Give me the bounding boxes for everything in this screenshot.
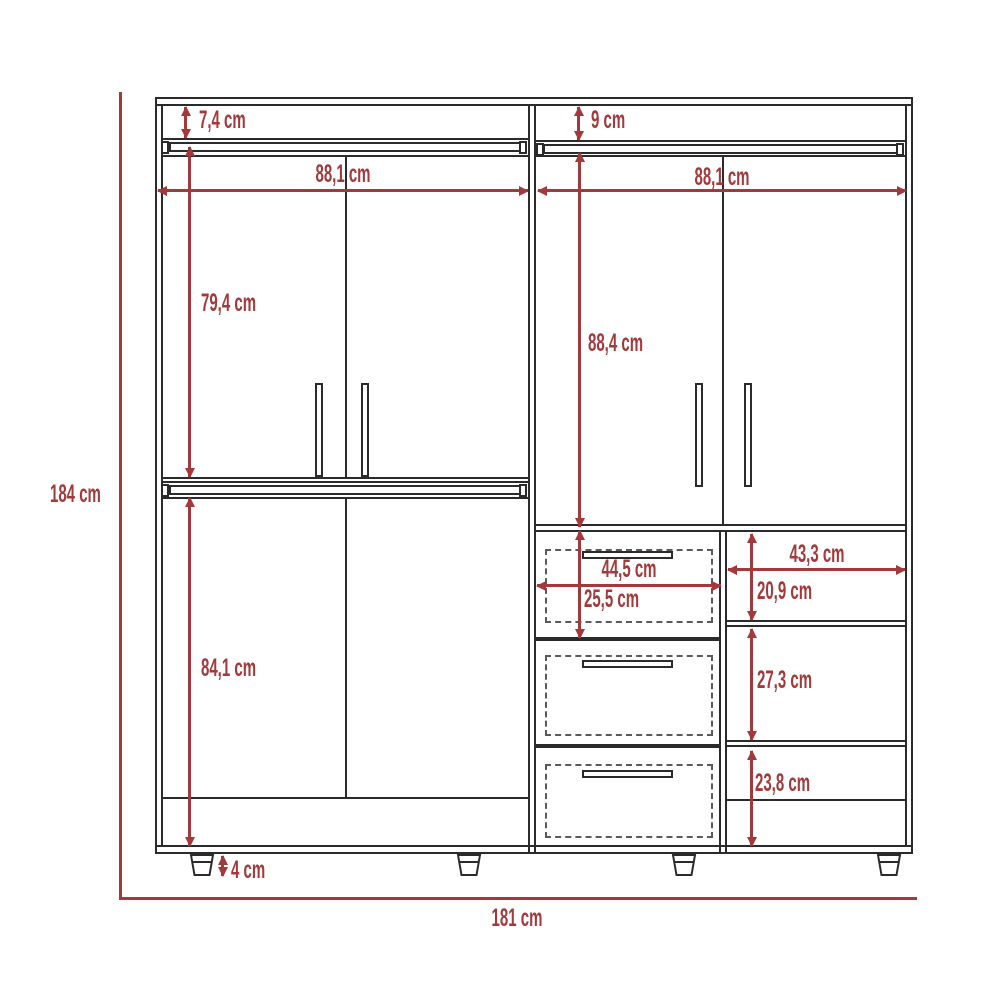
foot-far-left	[189, 854, 215, 876]
dim-label-right-section-width: 88,1 cm	[676, 165, 768, 190]
dim-label-text: 88,1 cm	[315, 162, 370, 187]
foot-center-left	[456, 854, 482, 876]
right-door-handle-left	[695, 383, 703, 487]
foot-far-right	[876, 854, 902, 876]
left-upper-door-handle-left	[315, 383, 323, 477]
drawer-3-handle	[582, 770, 673, 778]
right-door-handle-right	[744, 383, 752, 487]
dim-label-text: 23,8 cm	[755, 771, 810, 796]
left-upper-door-handle-right	[361, 383, 369, 477]
column-divider-right	[725, 530, 727, 852]
left-rod-cap-left	[161, 141, 169, 154]
left-top-shelf-line	[163, 138, 528, 140]
dim-line-total-width	[119, 897, 917, 900]
left-lower-door-divider	[345, 499, 347, 798]
drawer-divider-1	[536, 637, 719, 641]
dim-label-text: 27,3 cm	[757, 668, 812, 693]
right-doors-top-line	[536, 155, 905, 157]
left-middle-shelf-line	[163, 481, 528, 483]
dim-arrow-top-gap-left	[184, 107, 187, 138]
left-upper-doors-bottom-line	[163, 477, 528, 479]
left-hanging-rod-bottom	[169, 485, 522, 495]
dim-label-text: 84,1 cm	[201, 656, 256, 681]
left-hanging-rod-top	[169, 142, 522, 152]
dim-label-shelf-top-height: 20,9 cm	[757, 579, 849, 604]
dim-label-top-gap-left: 7,4 cm	[199, 108, 277, 133]
dim-label-text: 7,4 cm	[199, 108, 246, 133]
dim-label-drawer-width: 44,5 cm	[583, 557, 675, 582]
dim-label-shelf-bottom-height: 23,8 cm	[755, 771, 847, 796]
dim-label-left-upper-door-height: 79,4 cm	[201, 291, 293, 316]
dim-label-left-section-width: 88,1 cm	[297, 162, 389, 187]
dim-label-left-lower-door-height: 84,1 cm	[201, 656, 293, 681]
cabinet-center-divider-right	[534, 104, 536, 852]
dim-label-text: 25,5 cm	[584, 587, 639, 612]
left-lower-doors-bottom-line	[163, 797, 528, 799]
left-rod-cap-right	[519, 141, 527, 154]
dim-label-text: 43,3 cm	[789, 542, 844, 567]
left-rod2-cap-right	[519, 484, 527, 497]
dim-label-shelf-section-width: 43,3 cm	[771, 542, 863, 567]
dim-label-text: 4 cm	[231, 858, 265, 883]
dim-arrow-foot-height	[221, 856, 224, 876]
dim-label-top-gap-right: 9 cm	[591, 108, 648, 133]
dim-label-text: 181 cm	[492, 906, 543, 931]
dim-label-text: 44,5 cm	[601, 557, 656, 582]
shelf-divider-a-bottom	[727, 625, 905, 627]
dim-label-text: 88,4 cm	[588, 331, 643, 356]
dim-arrow-shelf-section-width	[728, 568, 905, 571]
shelf-divider-b-bottom	[727, 745, 905, 747]
dim-label-right-door-height: 88,4 cm	[588, 331, 680, 356]
right-hanging-rod	[543, 144, 898, 154]
wardrobe-dimension-diagram: 7,4 cm 9 cm 88,1 cm 88,1 cm 79,4 cm 88,4…	[0, 0, 1000, 1000]
cabinet-top-edge-outer	[155, 97, 913, 99]
cabinet-bottom-edge-outer	[155, 852, 913, 854]
dim-label-top-drawer-height: 25,5 cm	[584, 587, 676, 612]
dim-arrow-left-upper-door-height	[188, 147, 191, 477]
drawer-divider-2	[536, 744, 719, 748]
cabinet-center-divider-left	[528, 104, 530, 852]
cabinet-right-wall-outer	[911, 97, 913, 854]
cabinet-left-wall-inner	[161, 104, 163, 847]
dim-label-text: 79,4 cm	[201, 291, 256, 316]
dim-arrow-left-lower-door-height	[188, 498, 191, 846]
dim-arrow-right-door-height	[578, 153, 581, 527]
column-divider-left	[719, 530, 721, 852]
dim-label-total-width: 181 cm	[475, 906, 560, 931]
right-top-shelf-line	[536, 140, 905, 142]
dim-label-foot-height: 4 cm	[231, 858, 288, 883]
drawer-2-handle	[582, 660, 673, 668]
dim-arrow-shelf-top-height	[750, 534, 753, 620]
dim-label-shelf-middle-height: 27,3 cm	[757, 668, 849, 693]
shelf-bottom-inner-line	[727, 799, 905, 801]
dim-label-total-height: 184 cm	[50, 482, 135, 507]
dim-label-text: 20,9 cm	[757, 579, 812, 604]
dim-arrow-left-section-width	[158, 189, 528, 192]
dim-arrow-top-drawer-height	[578, 531, 581, 638]
dim-arrow-shelf-middle-height	[750, 629, 753, 740]
left-upper-door-divider	[345, 157, 347, 477]
dim-arrow-shelf-bottom-height	[750, 751, 753, 846]
dim-label-text: 184 cm	[50, 482, 101, 507]
right-doors-bottom-line	[536, 524, 905, 526]
foot-center-right	[671, 854, 697, 876]
cabinet-left-wall-outer	[155, 97, 157, 854]
dim-label-text: 9 cm	[591, 108, 625, 133]
dim-label-text: 88,1 cm	[694, 165, 749, 190]
left-rod2-cap-left	[161, 484, 169, 497]
right-door-divider	[722, 157, 724, 524]
cabinet-right-wall-inner	[905, 104, 907, 847]
dim-arrow-top-gap-right	[577, 107, 580, 140]
